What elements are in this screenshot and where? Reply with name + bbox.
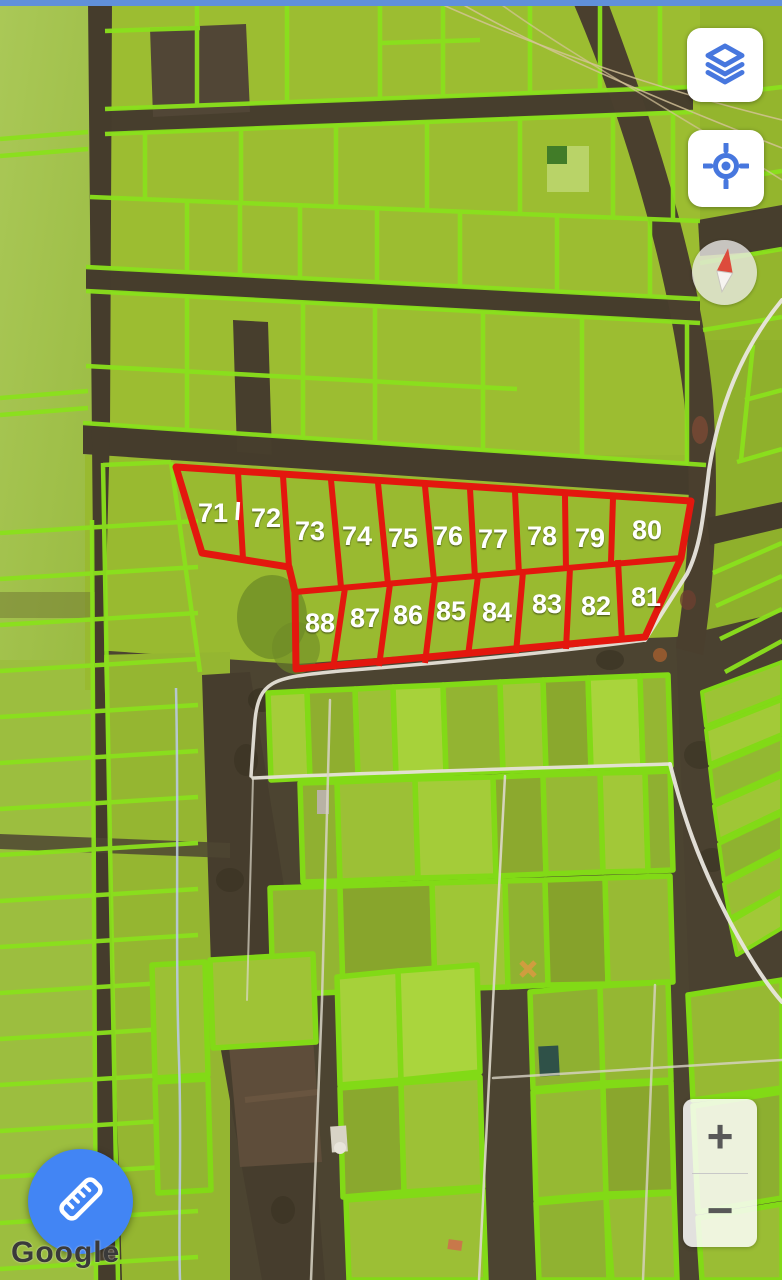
compass-needle-icon: [697, 242, 753, 303]
my-location-button[interactable]: [688, 130, 764, 207]
satellite-map[interactable]: 71 72 73 74 75 76 77 78 79 80 81 82 83 8…: [0, 0, 782, 1280]
parcel-label: 85: [436, 596, 466, 626]
zoom-in-button[interactable]: +: [683, 1099, 757, 1173]
parcel-label: 76: [433, 521, 463, 551]
parcel-label: 83: [532, 589, 562, 619]
parcel-label: 79: [575, 523, 605, 553]
parcel-label: 81: [631, 582, 661, 612]
zoom-out-button[interactable]: −: [683, 1174, 757, 1248]
parcel-label: 88: [305, 608, 335, 638]
parcel-label: 86: [393, 600, 423, 630]
ruler-icon: [52, 1170, 110, 1233]
compass-button[interactable]: [692, 240, 757, 305]
parcel-label: 84: [482, 597, 512, 627]
layers-button[interactable]: [687, 28, 763, 102]
parcel-label: 78: [527, 521, 557, 551]
parcel-label: 72: [251, 503, 281, 533]
boundary-line-top: [0, 0, 782, 6]
parcel-label: 87: [350, 603, 380, 633]
parcel-label: 74: [342, 521, 372, 551]
maps-app-screen: 71 72 73 74 75 76 77 78 79 80 81 82 83 8…: [0, 0, 782, 1280]
zoom-control: + −: [683, 1099, 757, 1247]
my-location-icon: [703, 143, 749, 194]
parcel-label: 73: [295, 516, 325, 546]
parcel-label: 75: [388, 523, 418, 553]
parcel-label: 71: [198, 498, 228, 528]
layers-icon: [702, 40, 748, 91]
parcel-label: 80: [632, 515, 662, 545]
google-logo: Google: [11, 1236, 120, 1270]
parcel-label: 82: [581, 591, 611, 621]
parcel-label: 77: [478, 524, 508, 554]
